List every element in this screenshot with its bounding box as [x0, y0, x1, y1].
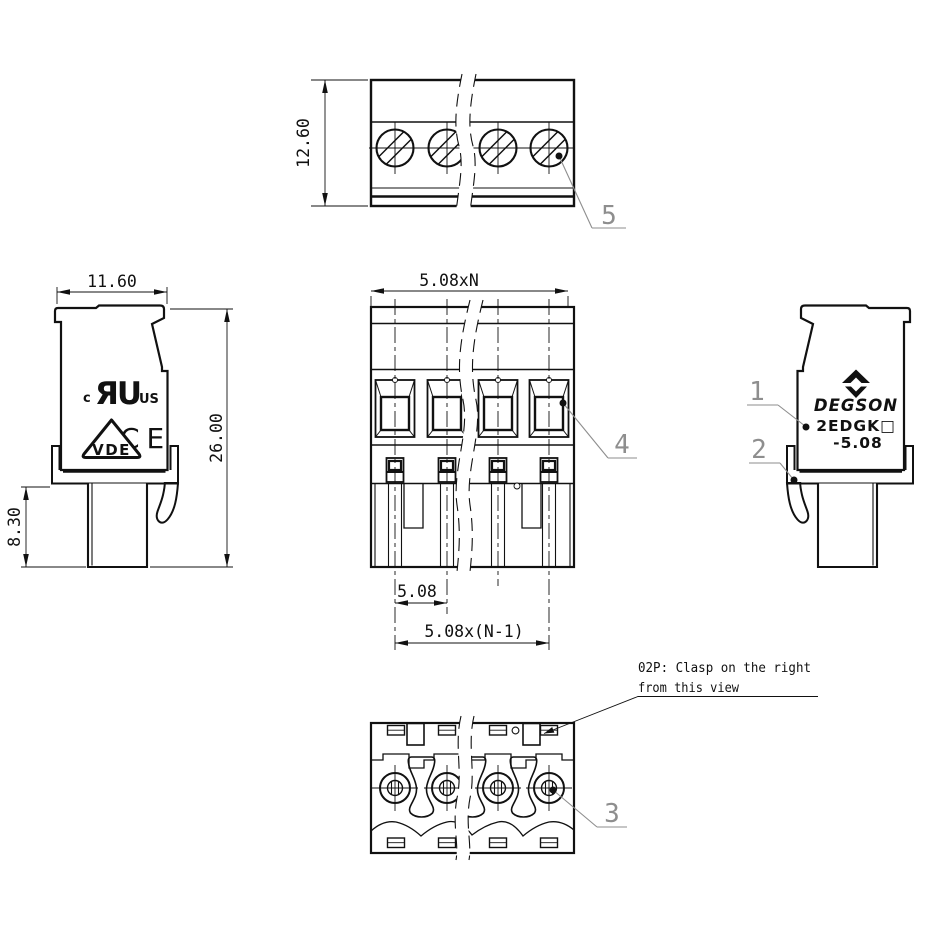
dimension-5-08x-N-1: 5.08x(N-1) [395, 622, 549, 643]
ul-mark: ЯU [95, 376, 140, 412]
dimension-8-30: 8.30 [5, 487, 86, 567]
callout-dot [560, 400, 567, 407]
orientation-note: 02P: Clasp on the right from this view [544, 660, 818, 734]
callout-number: 5 [601, 201, 617, 231]
ul-prefix: c [83, 391, 91, 406]
vde-label: VDE [92, 441, 131, 459]
brand-name: DEGSON [814, 396, 898, 415]
right-side-view: DEGSON 2EDGK□ -5.08 1 2 [747, 306, 913, 568]
callout-dot [803, 424, 810, 431]
dimension-label: 12.60 [294, 118, 313, 168]
callout-2: 2 [749, 435, 798, 484]
brand-model: 2EDGK□ [816, 417, 896, 435]
bottom-view: 3 02P: Clasp on the right from this view [371, 660, 818, 860]
technical-drawing-page: 12.60 5 c ЯU US CE VDE 11.60 [0, 0, 930, 932]
dimension-5-08: 5.08 [395, 582, 447, 603]
front-view: 5.08xN 5.08 5.08x(N-1) 4 [371, 271, 637, 650]
note-line-1: 02P: Clasp on the right [638, 660, 811, 676]
left-side-view: c ЯU US CE VDE 11.60 26.00 8.30 [5, 272, 233, 567]
dimension-label: 5.08 [397, 582, 437, 601]
dimension-label: 26.00 [207, 413, 226, 463]
pilot-hole [512, 727, 519, 734]
callout-dot [550, 787, 557, 794]
dimension-label: 11.60 [87, 272, 137, 291]
dimension-label: 8.30 [5, 507, 24, 547]
clasp-left [407, 724, 424, 746]
callout-number: 2 [751, 435, 767, 465]
callout-number: 4 [614, 430, 630, 460]
callout-number: 1 [749, 377, 765, 407]
ul-suffix: US [139, 392, 159, 407]
note-line-2: from this view [638, 680, 740, 696]
dimension-label: 5.08xN [419, 271, 479, 290]
clasp-right [523, 724, 540, 746]
dimension-11-60: 11.60 [57, 272, 167, 304]
dimension-label: 5.08x(N-1) [424, 622, 523, 641]
callout-dot [556, 153, 563, 160]
top-view: 12.60 5 [294, 74, 626, 231]
terminal-block-drawing: 12.60 5 c ЯU US CE VDE 11.60 [0, 0, 930, 932]
dimension-12-60: 12.60 [294, 80, 368, 206]
brand-pitch: -5.08 [833, 434, 883, 452]
callout-dot [791, 477, 798, 484]
callout-number: 3 [604, 799, 620, 829]
